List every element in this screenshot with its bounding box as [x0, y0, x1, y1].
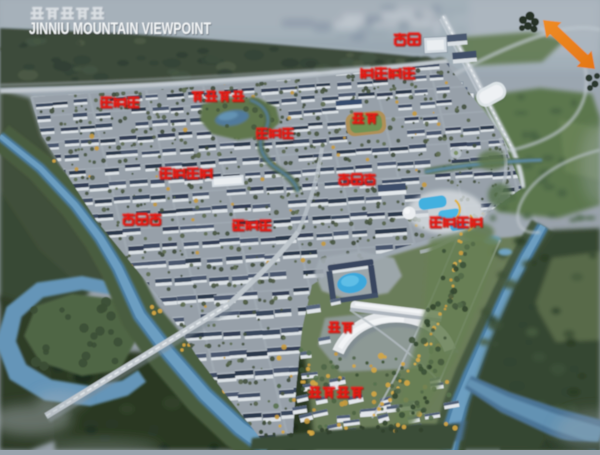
svg-text:JINNIU MOUNTAIN VIEWPOINT: JINNIU MOUNTAIN VIEWPOINT	[29, 19, 211, 38]
